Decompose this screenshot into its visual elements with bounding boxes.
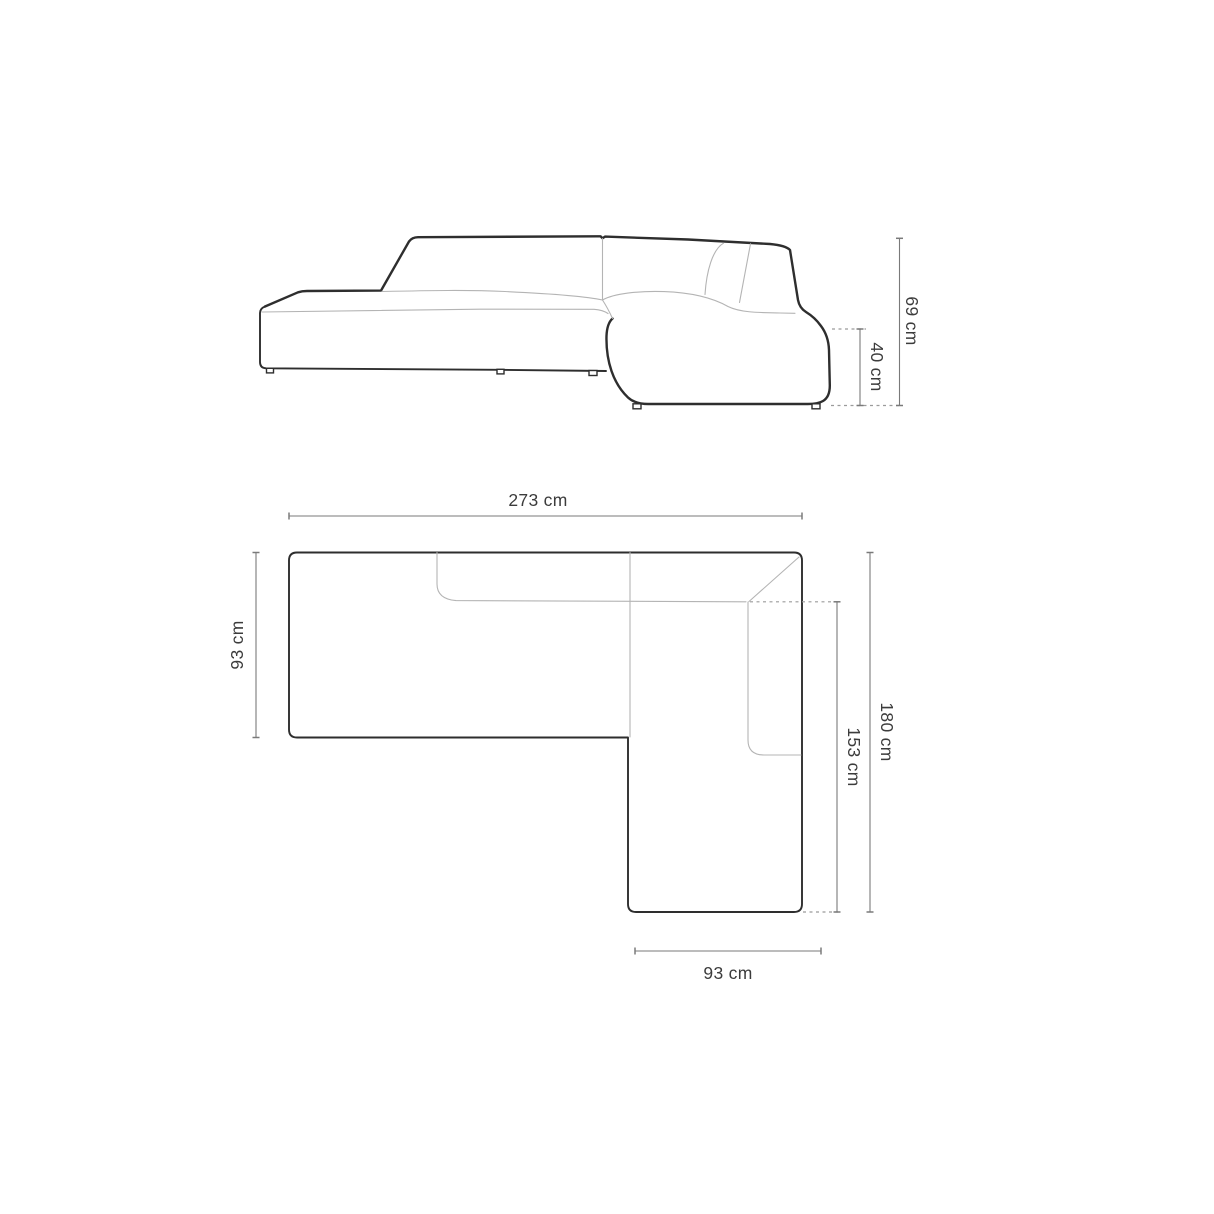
top-chaise-length-label: 153 cm (844, 727, 864, 786)
top-chaise-width-label: 93 cm (703, 963, 752, 983)
diagram-svg: 69 cm 40 cm 273 cm 93 (0, 0, 1214, 1214)
front-foot-corner (589, 371, 597, 376)
front-foot-chaise-left (633, 404, 641, 409)
front-total-height-label: 69 cm (902, 296, 922, 345)
front-foot-middle (497, 369, 504, 374)
top-total-width-label: 273 cm (508, 490, 567, 510)
top-total-depth-label: 180 cm (877, 702, 897, 761)
front-foot-chaise-right (812, 404, 820, 409)
front-seat-height-label: 40 cm (867, 342, 887, 391)
background (0, 0, 1214, 1214)
sofa-dimension-diagram: 69 cm 40 cm 273 cm 93 (0, 0, 1214, 1214)
front-foot-left (267, 368, 274, 373)
top-left-depth-label: 93 cm (227, 620, 247, 669)
